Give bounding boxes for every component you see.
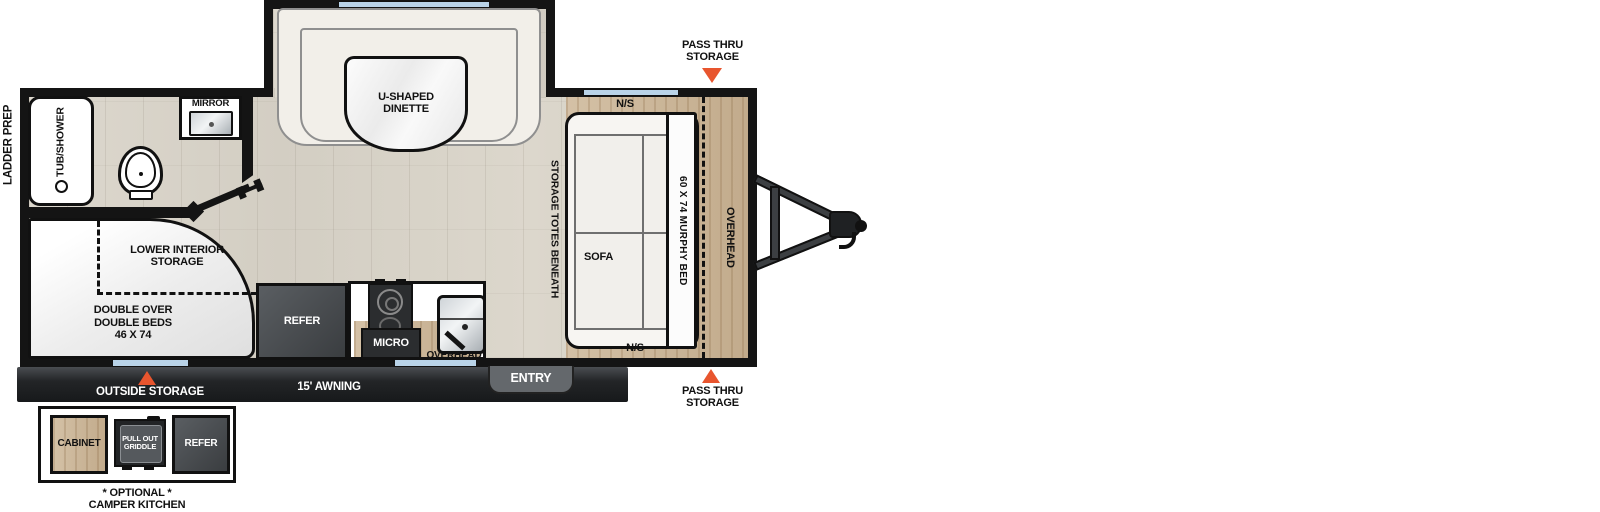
cooktop-icon — [368, 283, 413, 332]
vanity-sink-icon — [189, 111, 233, 136]
sofa-cushion: SOFA — [574, 134, 671, 330]
camper-refer: REFER — [172, 415, 230, 474]
dinette-label: U-SHAPED DINETTE — [344, 92, 468, 115]
ptb-line1: PASS THRU — [682, 385, 743, 397]
storage-totes-label: STORAGE TOTES BENEATH — [545, 133, 563, 325]
ns-bottom-label: N/S — [602, 343, 668, 355]
beds-line1: DOUBLE OVER — [94, 304, 172, 316]
bathroom-partition-wall — [242, 96, 253, 170]
vanity: MIRROR — [179, 96, 242, 140]
tub-drain-icon — [55, 180, 68, 193]
hitch-coupler-icon — [829, 211, 862, 238]
ptb-line2: STORAGE — [686, 397, 739, 409]
outside-storage-label: OUTSIDE STORAGE — [84, 386, 216, 398]
micro-label: MICRO — [373, 338, 409, 350]
tub-shower: TUB/SHOWER — [28, 96, 94, 206]
slideout-window — [338, 1, 490, 8]
beds-line3: 46 X 74 — [115, 329, 152, 341]
pass-thru-top-arrow-icon — [702, 68, 722, 83]
camper-kitchen-box: CABINET PULL OUT GRIDDLE REFER — [38, 406, 236, 483]
camper-cabinet: CABINET — [50, 415, 108, 474]
refer-label: REFER — [284, 316, 320, 328]
bedroom-top-window — [583, 89, 679, 96]
camper-griddle-label: PULL OUT GRIDDLE — [116, 435, 164, 452]
double-beds-label: DOUBLE OVER DOUBLE BEDS 46 X 74 — [72, 304, 194, 342]
entry-tab: ENTRY — [488, 366, 574, 394]
griddle-line2: GRIDDLE — [124, 442, 156, 451]
kitchen-sink-icon — [437, 295, 486, 354]
awning-label: 15' AWNING — [270, 381, 388, 393]
ns-top-label: N/S — [592, 99, 658, 111]
camper-refer-label: REFER — [185, 439, 218, 450]
camper-griddle: PULL OUT GRIDDLE — [114, 419, 166, 467]
camper-cabinet-label: CABINET — [57, 439, 100, 450]
overhead-bedroom-label: OVERHEAD — [719, 194, 739, 280]
murphy-bed-strip: 60 X 74 MURPHY BED — [666, 112, 697, 349]
entry-label: ENTRY — [511, 372, 552, 385]
camper-kitchen-caption: * OPTIONAL * CAMPER KITCHEN — [38, 487, 236, 511]
lis-line2: STORAGE — [151, 256, 204, 268]
ptt-line1: PASS THRU — [682, 39, 743, 51]
overhead-kitchen-label: OVERHEAD — [417, 351, 491, 362]
toilet-icon — [118, 146, 163, 202]
tub-shower-label: TUB/SHOWER — [31, 99, 91, 185]
microwave: MICRO — [361, 328, 421, 359]
hitch-crossbar — [770, 186, 780, 260]
ptt-line2: STORAGE — [686, 51, 739, 63]
pass-thru-bottom-label: PASS THRU STORAGE — [660, 386, 765, 409]
pass-thru-top-label: PASS THRU STORAGE — [660, 40, 765, 63]
bathroom-bottom-wall — [20, 207, 192, 218]
lis-line1: LOWER INTERIOR — [130, 244, 224, 256]
caption-line2: CAMPER KITCHEN — [89, 499, 186, 511]
refrigerator: REFER — [256, 283, 348, 360]
mirror-label: MIRROR — [182, 99, 239, 109]
sofa-label: SOFA — [584, 252, 613, 264]
floorplan-canvas: U-SHAPED DINETTE LADDER PREP TUB/SHOWER … — [0, 0, 1600, 512]
bed-dashed-divider — [702, 97, 705, 358]
outside-storage-arrow-icon — [138, 371, 156, 385]
bunk-bottom-window — [112, 359, 189, 367]
beds-line2: DOUBLE BEDS — [94, 317, 172, 329]
dinette-label-line1: U-SHAPED — [378, 91, 434, 103]
lower-interior-storage-label: LOWER INTERIOR STORAGE — [108, 245, 246, 268]
caption-line1: * OPTIONAL * — [103, 487, 172, 499]
dinette-label-line2: DINETTE — [383, 103, 429, 115]
ladder-prep-label: LADDER PREP — [0, 94, 17, 196]
pass-thru-bottom-arrow-icon — [702, 369, 720, 383]
